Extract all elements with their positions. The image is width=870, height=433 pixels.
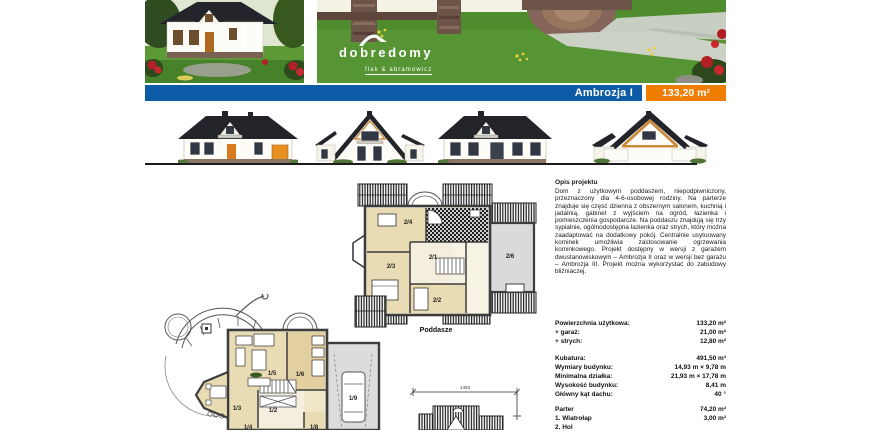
room-label: 1/8 <box>310 425 319 430</box>
project-area-badge: 133,20 m² <box>646 85 726 101</box>
room-label: 2/2 <box>433 298 442 304</box>
project-description: Opis projektu Dom z użytkowym poddaszem,… <box>555 179 726 276</box>
parter-table-header: Parter74,20 m² <box>555 406 726 415</box>
parter-table-row: 2. Hol <box>555 424 726 433</box>
logo-brand: dobredomy <box>339 46 433 59</box>
room-label: 1/3 <box>233 406 242 412</box>
spec-row: Wysokość budynku:8,41 m <box>555 382 726 391</box>
poddasze-caption: Poddasze <box>390 327 482 334</box>
description-body: Dom z użytkowym poddaszem, niepodpiwnicz… <box>555 188 726 276</box>
spec-row: Wymiary budynku:14,93 m × 9,78 m <box>555 364 726 373</box>
room-label: 1/6 <box>296 372 305 378</box>
room-label: 2/1 <box>429 255 438 261</box>
spec-row: Główny kąt dachu:40 ° <box>555 391 726 400</box>
elevation-front <box>178 111 298 164</box>
parter-table-row: 1. Wiatrołap3,00 m² <box>555 415 726 424</box>
elevation-garden-side <box>315 111 425 164</box>
room-label: 1/2 <box>269 408 278 414</box>
project-title: Ambrozja I <box>575 87 633 99</box>
front-dimension-drawing: 1493 <box>405 376 533 430</box>
description-heading: Opis projektu <box>555 179 726 186</box>
elevation-back <box>438 111 552 164</box>
spec-row: Kubatura:491,50 m³ <box>555 355 726 364</box>
room-label: 1/4 <box>244 425 253 430</box>
room-label: 2/3 <box>387 264 396 270</box>
front-width-dimension: 1493 <box>460 385 471 390</box>
room-label: 2/4 <box>404 220 413 226</box>
parter-floor-plan: 1/5 1/6 1/3 1/2 1/4 1/8 1/9 <box>152 294 398 430</box>
parter-room-table: Parter74,20 m² 1. Wiatrołap3,00 m² 2. Ho… <box>555 406 726 433</box>
room-label: 1/5 <box>268 371 277 377</box>
photo-house-exterior-art <box>145 0 304 83</box>
room-label: 1/9 <box>349 396 358 402</box>
logo-subtitle: flak & abramowicz <box>365 67 432 75</box>
room-label: 2/6 <box>506 254 515 260</box>
elevation-gable-side <box>592 111 708 164</box>
dobredomy-logo: dobredomy flak & abramowicz <box>339 33 433 75</box>
spec-row: Minimalna działka:21,93 m × 17,78 m <box>555 373 726 382</box>
spec-row: Powierzchnia użytkowa:133,20 m² <box>555 320 726 329</box>
spec-list: Powierzchnia użytkowa:133,20 m² + garaż:… <box>555 320 726 400</box>
spec-row: + garaż:21,00 m² <box>555 329 726 338</box>
photo-house-garden: dobredomy flak & abramowicz <box>317 0 726 83</box>
elevations-ground-line <box>145 163 697 165</box>
project-area-value: 133,20 m² <box>662 87 710 99</box>
project-title-bar: Ambrozja I <box>145 85 642 101</box>
photo-house-exterior <box>145 0 304 83</box>
spec-row: + strych:12,80 m² <box>555 338 726 347</box>
